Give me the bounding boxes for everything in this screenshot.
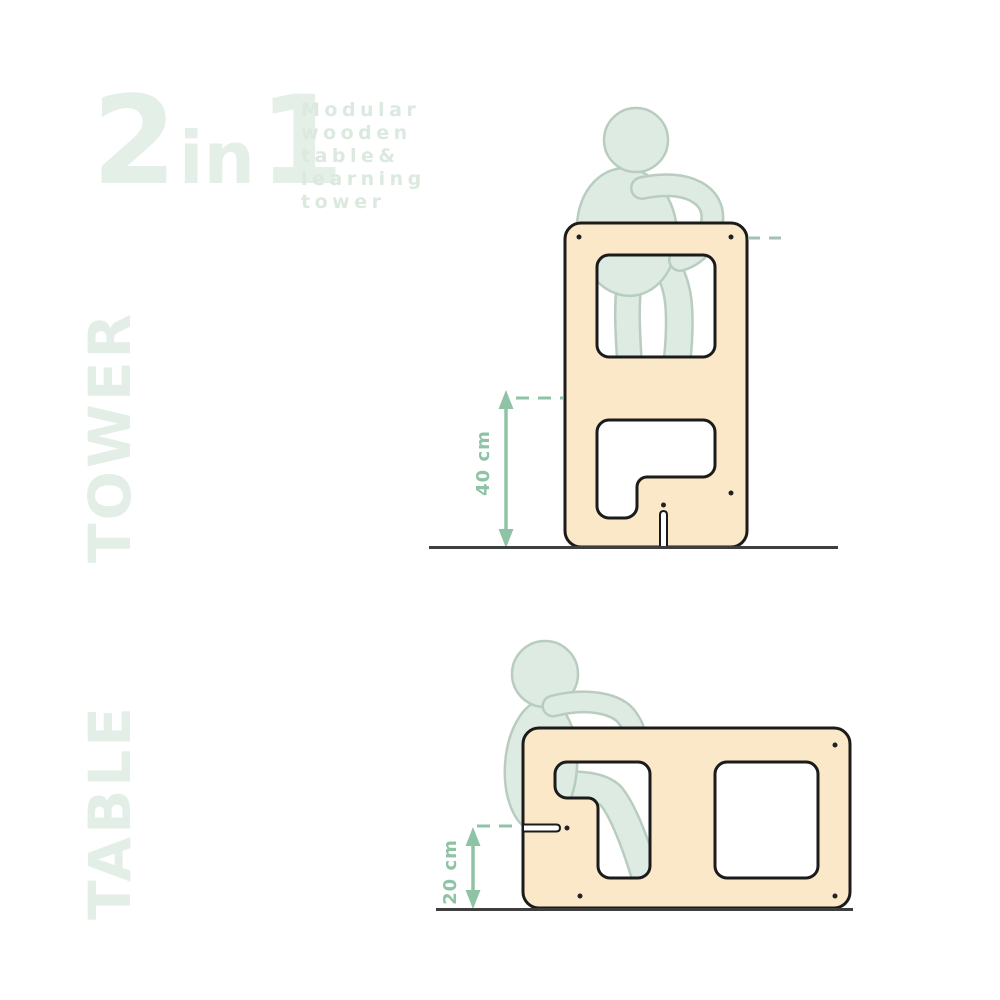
- child-head: [604, 108, 668, 172]
- screw-hole-dot: [729, 491, 734, 496]
- arrow-up-icon: [499, 390, 514, 409]
- arrow-down-icon: [466, 890, 481, 909]
- title-digit-2: 2: [92, 80, 175, 202]
- table-dimension-20cm: [466, 826, 522, 909]
- screw-hole-dot: [578, 894, 583, 899]
- screw-hole-dot: [833, 743, 838, 748]
- table-window-cutout: [715, 762, 818, 878]
- screw-hole-dot: [577, 235, 582, 240]
- tower-height-dimension-label: 40 cm: [474, 428, 494, 498]
- subtitle-line: table&: [301, 145, 426, 168]
- table-diagram: [410, 620, 870, 920]
- tower-assembly-slot: [660, 511, 667, 548]
- table-panel: [523, 728, 850, 908]
- product-subtitle: Modular wooden table& learning tower: [301, 99, 426, 214]
- table-section-label: TABLE: [82, 692, 138, 932]
- subtitle-line: Modular: [301, 99, 426, 122]
- subtitle-line: wooden: [301, 122, 426, 145]
- arrow-up-icon: [466, 827, 481, 846]
- arrow-down-icon: [499, 529, 514, 548]
- title-in: in: [179, 122, 255, 194]
- subtitle-line: tower: [301, 191, 426, 214]
- tower-dimension-40cm: [499, 390, 564, 548]
- table-height-dimension-label: 20 cm: [441, 837, 461, 907]
- screw-hole-dot: [661, 503, 666, 508]
- screw-hole-dot: [565, 826, 570, 831]
- tower-section-label: TOWER: [82, 323, 138, 563]
- screw-hole-dot: [729, 235, 734, 240]
- screw-hole-dot: [833, 894, 838, 899]
- subtitle-line: learning: [301, 168, 426, 191]
- table-assembly-slot: [524, 825, 560, 832]
